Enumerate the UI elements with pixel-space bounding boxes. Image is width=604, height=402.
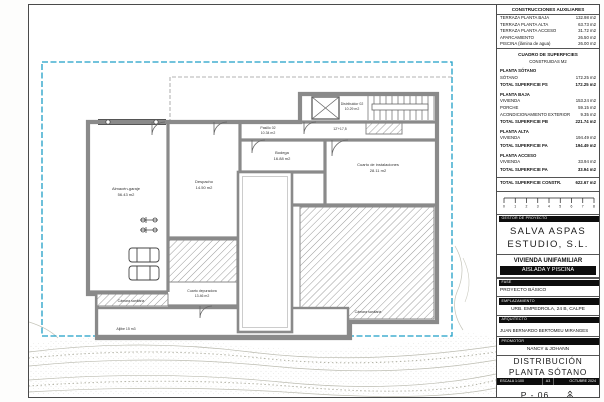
surface-row: VIVIENDA33.94 m2 bbox=[497, 159, 599, 166]
aux-row: APARCAMIENTO26.50 m2 bbox=[497, 35, 599, 42]
room-area: 56.43 m2 bbox=[118, 192, 135, 197]
surface-total: TOTAL SUPERFICIE PB221.74 m2 bbox=[497, 119, 599, 126]
graphic-scale: 0 1 2 3 4 5 6 7 8 bbox=[497, 191, 599, 214]
tree-icon bbox=[565, 389, 575, 397]
field-promotor: PROMOTOR NANCY & JOHANN bbox=[497, 336, 599, 355]
room-label: Cámara sanitaria bbox=[355, 310, 382, 314]
svg-text:8: 8 bbox=[593, 204, 595, 208]
aux-row: TERRAZA PLANTA BAJA132.98 m2 bbox=[497, 15, 599, 22]
fase-value: PROYECTO BÁSICO bbox=[497, 286, 599, 296]
project-line1: VIVIENDA UNIFAMILIAR bbox=[497, 255, 599, 265]
room-label: Cuarto depuradora bbox=[187, 289, 216, 293]
central-shaft bbox=[238, 172, 292, 332]
room-area: 14.50 m2 bbox=[196, 185, 213, 190]
project-line2: AISLADA Y PISCINA bbox=[500, 266, 596, 275]
surface-table-title: CUADRO DE SUPERFICIES bbox=[497, 49, 599, 57]
surface-total: TOTAL SUPERFICIE PA33.94 m2 bbox=[497, 167, 599, 174]
surface-row: ACONDICIONAMIENTO EXTERIOR9.35 m2 bbox=[497, 112, 599, 119]
room-label: Distribuidor 02 bbox=[341, 102, 364, 106]
field-fase: FASE PROYECTO BÁSICO bbox=[497, 278, 599, 297]
svg-text:3: 3 bbox=[537, 204, 539, 208]
room-area: 10.34 m2 bbox=[261, 131, 276, 135]
surface-section: PLANTA BAJA bbox=[497, 92, 599, 99]
field-arquitecto: ARQUITECTO JUAN BERNARDO BERTOMEU MIRANG… bbox=[497, 315, 599, 337]
room-label: Cámara sanitaria bbox=[118, 299, 145, 303]
studio-name: SALVA ASPAS ESTUDIO, S.L. bbox=[497, 222, 599, 254]
sheet-frame: Almacén-garaje 56.43 m2 Despacho 14.50 m… bbox=[28, 4, 600, 398]
room-area: 28.11 m2 bbox=[370, 168, 387, 173]
surface-section: PLANTA ACCESO bbox=[497, 153, 599, 160]
drawing-sheet: Almacén-garaje 56.43 m2 Despacho 14.50 m… bbox=[0, 0, 604, 402]
promotor-value: NANCY & JOHANN bbox=[497, 345, 599, 355]
room-label: Pasillo 02 bbox=[260, 126, 275, 130]
room-label: Despacho bbox=[195, 179, 214, 184]
studio-section: GESTOR DE PROYECTO SALVA ASPAS ESTUDIO, … bbox=[497, 214, 599, 255]
project-title-box: VIVIENDA UNIFAMILIAR AISLADA Y PISCINA bbox=[497, 254, 599, 278]
surface-section: PLANTA ALTA bbox=[497, 129, 599, 136]
surface-section: PLANTA SÓTANO bbox=[497, 68, 599, 75]
surface-table-subtitle: CONSTRUIDAS M2 bbox=[497, 57, 599, 65]
svg-text:7: 7 bbox=[582, 204, 584, 208]
escala: ESCALA 1:100 bbox=[497, 378, 542, 385]
aux-table-title: CONSTRUCCIONES AUXILIARES bbox=[497, 5, 599, 15]
svg-text:2: 2 bbox=[526, 204, 528, 208]
surface-total: TOTAL SUPERFICIE PS172.25 m2 bbox=[497, 82, 599, 89]
room-area: 16.88 m2 bbox=[274, 156, 291, 161]
room-label: Bodega bbox=[275, 150, 290, 155]
sheet-number-row: P - 06 bbox=[497, 385, 599, 397]
sheet-number: P - 06 bbox=[521, 390, 550, 397]
stair-note: 12'+17,5 bbox=[333, 127, 346, 131]
sheet-info-bar: ESCALA 1:100 A3 OCTUBRE 2024 bbox=[497, 378, 599, 385]
svg-text:4: 4 bbox=[548, 204, 550, 208]
floor-plan: Almacén-garaje 56.43 m2 Despacho 14.50 m… bbox=[29, 5, 497, 397]
room-label: Almacén-garaje bbox=[112, 186, 141, 191]
arquitecto-value: JUAN BERNARDO BERTOMEU MIRANGES bbox=[497, 323, 599, 336]
surface-row: VIVIENDA194.49 m2 bbox=[497, 135, 599, 142]
svg-text:6: 6 bbox=[571, 204, 573, 208]
surface-row: SÓTANO172.25 m2 bbox=[497, 75, 599, 82]
room-label: Aljibe 15 m3 bbox=[116, 327, 135, 331]
drawing-title: DISTRIBUCIÓN PLANTA SÓTANO bbox=[497, 355, 599, 378]
emplazamiento-value: URB. EMPEDROLA, 24 B, CALPE bbox=[497, 305, 599, 315]
aljibe-room bbox=[97, 308, 348, 336]
room-area: 10.29 m2 bbox=[345, 107, 360, 111]
svg-text:5: 5 bbox=[559, 204, 561, 208]
room-label: Cuarto de instalaciones bbox=[357, 162, 399, 167]
field-emplazamiento: EMPLAZAMIENTO URB. EMPEDROLA, 24 B, CALP… bbox=[497, 296, 599, 315]
formato: A3 bbox=[542, 378, 554, 385]
title-block: CONSTRUCCIONES AUXILIARES TERRAZA PLANTA… bbox=[496, 5, 599, 397]
surface-row: PORCHE59.15 m2 bbox=[497, 105, 599, 112]
aux-row: TERRAZA PLANTA ALTA63.73 m2 bbox=[497, 22, 599, 29]
aux-row: TERRAZA PLANTA ACCESO31.72 m2 bbox=[497, 28, 599, 35]
surface-grand-total: TOTAL SUPERFICIE CONSTR.622.67 m2 bbox=[497, 177, 599, 187]
fecha: OCTUBRE 2024 bbox=[554, 378, 599, 385]
aux-row: PISCINA (lámina de agua)26.00 m2 bbox=[497, 41, 599, 48]
svg-text:1: 1 bbox=[514, 204, 516, 208]
surface-row: VIVIENDA153.24 m2 bbox=[497, 98, 599, 105]
svg-text:0: 0 bbox=[503, 204, 505, 208]
surface-total: TOTAL SUPERFICIE PA194.49 m2 bbox=[497, 143, 599, 150]
elevator bbox=[312, 97, 339, 119]
room-area: 13.46 m2 bbox=[195, 294, 210, 298]
